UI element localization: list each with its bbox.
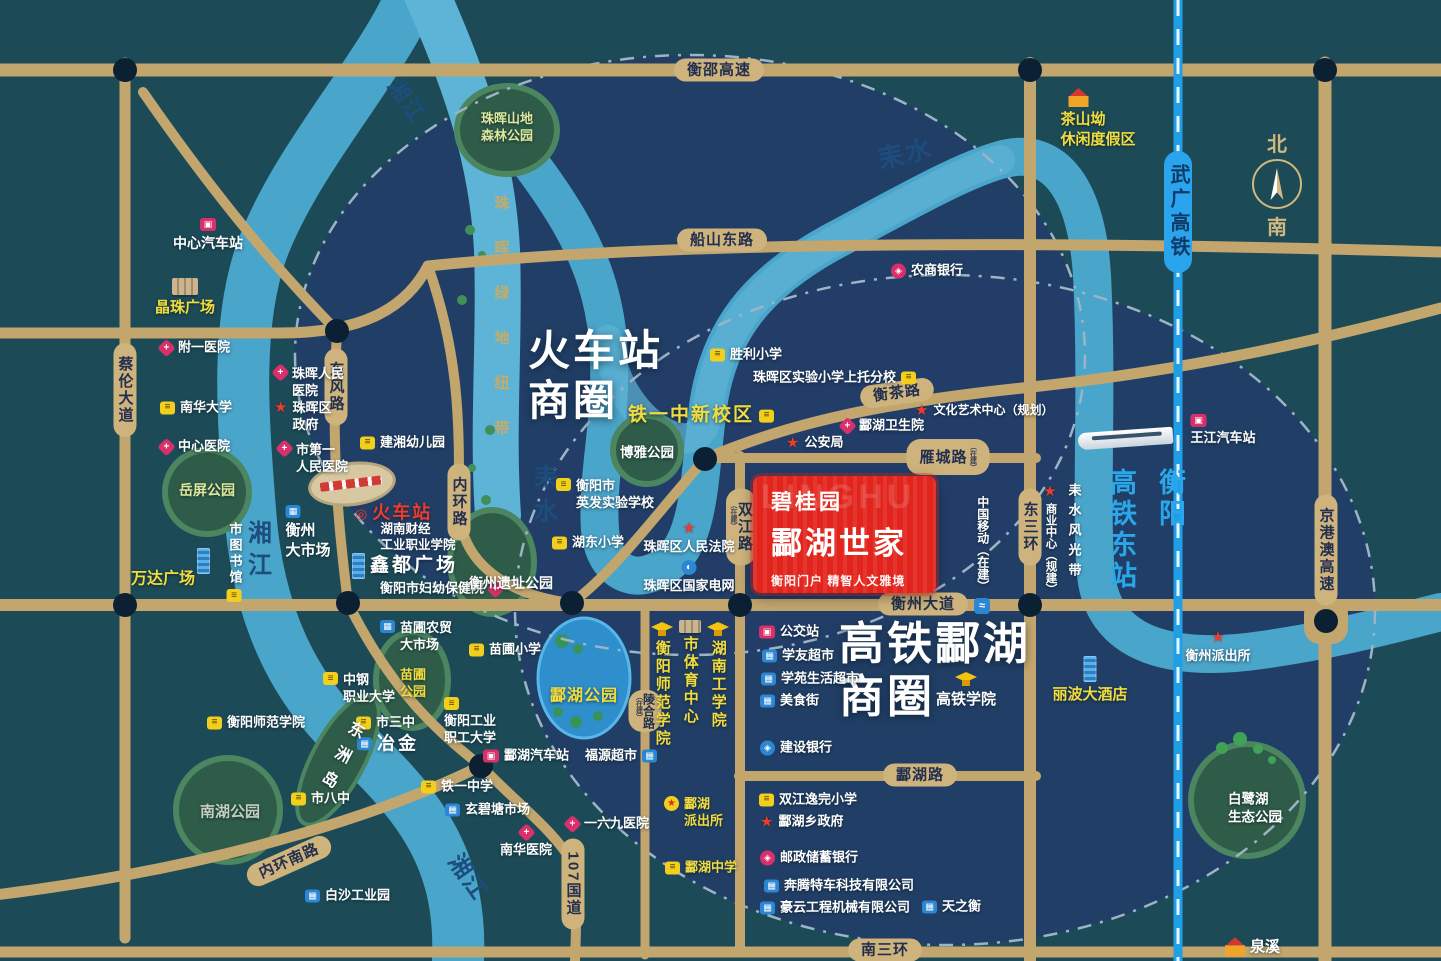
gov-star-icon: ★ xyxy=(760,814,773,829)
road-label-g107: 107国道 xyxy=(562,838,585,929)
poi-xuanbitang-market: ▦ 玄碧塘市场 xyxy=(445,802,530,819)
gov-star-icon: ★ xyxy=(682,521,695,536)
hospital-icon: + xyxy=(157,339,175,357)
poi-xueyuan-life-supermarket: ▦ 学苑生活超市 xyxy=(761,671,859,688)
company-icon: ▦ xyxy=(760,901,775,914)
poi-hengzhou-market: ▦ 衡州 大市场 xyxy=(285,505,330,560)
bank-icon: ◈ xyxy=(891,263,906,278)
grad-cap-icon xyxy=(650,622,674,637)
poi-hengyang-normal-college: 衡阳师范学院 xyxy=(650,622,674,748)
company-icon: ▦ xyxy=(764,879,779,892)
poi-finance-college: 湖南财经 工业职业学院 xyxy=(380,521,455,554)
road-label-hengzhou-ave: 衡州大道 xyxy=(878,593,968,616)
greenway-label: 珠晖绿地纽带 xyxy=(491,195,512,465)
poi-no8-middle-school: ≡ 市八中 xyxy=(291,791,350,808)
poi-china-mobile: 中国移动（在建） ≈ xyxy=(974,496,990,614)
compass-south-label: 南 xyxy=(1267,211,1287,240)
poi-boya-park: 博雅公园 xyxy=(620,444,674,462)
hospital-icon: + xyxy=(838,417,856,435)
bus-icon: ▣ xyxy=(1190,414,1206,427)
poi-linghu-middle-school: ≡ 酃湖中学 xyxy=(665,860,737,877)
market-icon: ▦ xyxy=(762,649,777,662)
poi-chashanao-resort: 茶山坳 休闲度假区 xyxy=(1060,88,1135,149)
bank-icon: ◈ xyxy=(760,850,775,865)
school-icon: ≡ xyxy=(323,672,338,685)
poi-quanxi: 泉溪 xyxy=(1225,937,1280,957)
poi-xueyou-supermarket: ▦ 学友超市 xyxy=(762,648,834,665)
tower-icon xyxy=(352,553,365,579)
poi-zhuhui-people-hospital: + 珠晖人民 医院 xyxy=(274,366,344,400)
poi-yejin: ▦ 冶金 xyxy=(357,732,419,755)
poi-city-library: 市图书馆 ≡ xyxy=(226,522,243,602)
poi-construction-bank: ◈ 建设银行 xyxy=(760,740,832,757)
poi-linghu-police-station: ★ 酃湖 派出所 xyxy=(664,796,723,830)
poi-miaopu-park: 苗圃 公园 xyxy=(400,667,426,701)
market-icon: ▦ xyxy=(760,694,775,707)
poi-hsr-college: 高铁学院 xyxy=(936,672,996,710)
poi-baisha-industrial: ▦ 白沙工业园 xyxy=(305,888,390,905)
police-star-icon: ★ xyxy=(664,796,679,811)
school-icon: ≡ xyxy=(759,410,774,423)
poi-bus-stop: ▣ 公交站 xyxy=(759,624,819,641)
poi-fuyuan-supermarket: 福源超市 ▦ xyxy=(585,748,657,765)
poi-jianxiang-kindergarten: ≡ 建湘幼儿园 xyxy=(360,435,445,452)
poi-libo-hotel: 丽波大酒店 xyxy=(1052,656,1127,705)
poi-central-hospital: + 中心医院 xyxy=(160,439,230,456)
poi-culture-art-center: ★ 文化艺术中心（规划） xyxy=(915,403,1053,419)
stadium-icon xyxy=(679,620,701,633)
project-brand: 碧桂园 xyxy=(771,486,936,516)
school-icon: ≡ xyxy=(291,792,306,805)
gov-star-icon: ★ xyxy=(274,400,287,415)
hospital-icon: + xyxy=(517,823,535,841)
poi-state-grid: ◐ 珠晖区国家电网 xyxy=(643,560,734,595)
school-icon: ≡ xyxy=(469,643,484,656)
road-label-chuanshan-east: 船山东路 xyxy=(677,229,767,252)
poi-169-hospital: + 一六九医院 xyxy=(566,816,649,833)
poi-shengli-primary: ≡ 胜利小学 xyxy=(710,347,782,364)
bank-icon: ◈ xyxy=(760,740,775,755)
road-label-south-3rd-ring: 南三环 xyxy=(848,939,922,961)
poi-zhonggang-university: ≡ 中钢 职业大学 xyxy=(323,672,395,706)
school-icon: ≡ xyxy=(444,697,459,710)
poi-food-street: ▦ 美食街 xyxy=(760,693,819,710)
poi-zhuhui-forest-park: 珠晖山地 森林公园 xyxy=(481,111,533,145)
school-icon: ≡ xyxy=(759,793,774,806)
poi-linghu-park: 酃湖公园 xyxy=(550,687,618,708)
bus-icon: ▣ xyxy=(759,625,775,638)
company-icon: ▦ xyxy=(922,900,937,913)
school-icon: ≡ xyxy=(710,348,725,361)
poi-leishui-scenic-belt: 耒水风光带 xyxy=(1065,483,1082,583)
company-icon: ▦ xyxy=(305,889,320,902)
poi-bailuhu-park: 白鹭湖 生态公园 xyxy=(1228,790,1282,825)
grad-cap-icon xyxy=(706,622,730,637)
poi-central-bus-station: ▣ 中心汽车站 xyxy=(173,218,243,252)
market-icon: ▦ xyxy=(761,672,776,685)
gov-star-icon: ★ xyxy=(915,404,928,419)
poi-fuyi-hospital: + 附一医院 xyxy=(160,340,230,357)
poi-hengzhou-ruins-park: 衡州遗址公园 xyxy=(469,574,553,592)
hospital-icon: + xyxy=(563,815,581,833)
poi-haoyun-company: ▦ 豪云工程机械有限公司 xyxy=(760,900,910,917)
school-icon: ≡ xyxy=(556,478,571,491)
library-icon: ≡ xyxy=(226,589,241,602)
poi-miaopu-primary: ≡ 苗圃小学 xyxy=(469,642,541,659)
road-label-east-3rd-ring: 东三环 xyxy=(1019,489,1042,566)
bus-icon: ▣ xyxy=(200,218,216,231)
school-icon: ≡ xyxy=(360,436,375,449)
school-icon: ≡ xyxy=(665,861,680,874)
bus-icon: ▣ xyxy=(483,749,499,762)
poi-linghu-clinic: + 酃湖卫生院 xyxy=(841,418,924,435)
gov-star-icon: ★ xyxy=(786,435,799,450)
poi-hengzhou-police-station: ★ 衡州派出所 xyxy=(1185,630,1250,665)
poi-tieyi-new-campus: 铁一中新校区 ≡ xyxy=(628,404,774,429)
poi-jingzhu-plaza: 晶珠广场 xyxy=(155,278,215,318)
market-icon: ▦ xyxy=(285,505,300,518)
poi-shuangjiang-primary: ≡ 双江逸完小学 xyxy=(759,792,857,809)
road-label-jinggangao: 京港澳高速 xyxy=(1315,495,1338,606)
poi-industrial-workers-college: ≡ 衡阳工业 职工大学 xyxy=(444,697,496,747)
poi-rural-commercial-bank: ◈ 农商银行 xyxy=(891,263,963,280)
poi-yingfa-school: ≡ 衡阳市 英发实验学校 xyxy=(556,478,654,512)
project-name: 酃湖世家 xyxy=(771,518,936,563)
poi-hudong-primary: ≡ 湖东小学 xyxy=(552,535,624,552)
school-icon: ≡ xyxy=(160,401,175,414)
poi-benteng-company: ▦ 奔腾特车科技有限公司 xyxy=(764,878,914,895)
hospital-icon: + xyxy=(157,438,175,456)
poi-miaopu-farm-market: ▦ 苗圃农贸 大市场 xyxy=(380,620,452,654)
compass-rose-icon xyxy=(1252,159,1302,209)
poi-zhuhui-district-gov: ★ 珠晖区 政府 xyxy=(274,400,331,434)
poi-linghu-township-gov: ★ 酃湖乡政府 xyxy=(760,814,843,831)
poi-yueping-park: 岳屏公园 xyxy=(179,481,235,499)
market-icon: ▦ xyxy=(445,803,460,816)
location-map: 衡邵高速 船山东路 衡茶路 雁城路（在建） 衡州大道 酃湖路 南三环 内环南路 … xyxy=(0,0,1441,961)
poi-public-security-bureau: ★ 公安局 xyxy=(786,435,843,452)
hospital-icon: + xyxy=(275,439,293,457)
poi-postal-savings-bank: ◈ 邮政储蓄银行 xyxy=(760,850,858,867)
river-label-xiangjiang-mid: 湘江 xyxy=(240,520,275,584)
poi-city-sports-center: 市体育中心 xyxy=(679,620,701,726)
gov-star-icon: ★ xyxy=(1211,630,1224,645)
poi-nanhu-park: 南湖公园 xyxy=(200,802,260,822)
market-icon: ▦ xyxy=(642,749,657,762)
hospital-icon: + xyxy=(271,363,289,381)
state-grid-icon: ◐ xyxy=(681,560,696,575)
poi-commercial-center: ★ 商业中心（规建） xyxy=(1043,484,1058,595)
road-label-yancheng: 雁城路（在建） xyxy=(906,439,989,475)
poi-wanda-plaza: 万达广场 xyxy=(131,570,195,591)
tower-icon xyxy=(1083,656,1096,682)
poi-wangjiang-bus-station: ▣ 王江汽车站 xyxy=(1190,414,1255,447)
market-icon: ▦ xyxy=(380,620,395,633)
poi-xindu-plaza: 鑫都广场 xyxy=(352,553,458,579)
compass: 北 南 xyxy=(1252,128,1302,240)
project-card-linghu-shijia: LINGHU 碧桂园 酃湖世家 衡阳门户 精智人文雅境 xyxy=(753,476,936,593)
road-label-wuguang-hsr: 武广高铁 xyxy=(1164,151,1192,273)
rail-ring-icon: ◎ xyxy=(355,506,367,520)
poi-hunan-institute-tech: 湖南工学院 xyxy=(706,622,730,730)
house-icon xyxy=(1225,946,1245,957)
road-label-hengshao-expwy: 衡邵高速 xyxy=(674,59,764,82)
china-mobile-icon: ≈ xyxy=(974,598,990,614)
poi-nanhua-university: ≡ 南华大学 xyxy=(160,400,232,417)
school-icon: ≡ xyxy=(901,371,916,384)
compass-north-label: 北 xyxy=(1267,128,1287,157)
poi-zhuhui-court: ★ 珠晖区人民法院 xyxy=(643,521,734,556)
poi-linghu-bus-station: ▣ 酃湖汽车站 xyxy=(483,748,569,765)
building-icon xyxy=(172,278,198,295)
poi-hengyang-normal-west: ≡ 衡阳师范学院 xyxy=(207,715,305,732)
poi-zhuhui-experimental-branch: 珠晖区实验小学上托分校 ≡ xyxy=(753,370,916,387)
gov-star-icon: ★ xyxy=(1043,484,1056,499)
school-icon: ≡ xyxy=(552,536,567,549)
road-label-cailun-ave: 蔡伦大道 xyxy=(114,343,137,437)
school-icon: ≡ xyxy=(421,780,436,793)
house-icon xyxy=(1068,96,1088,107)
poi-tieyi-middle-school: ≡ 铁一中学 xyxy=(421,779,493,796)
poi-tianzhiheng: ▦ 天之衡 xyxy=(922,899,981,916)
poi-nanhua-hospital: + 南华医院 xyxy=(500,826,552,859)
hsr-east-station-label: 高铁东站 衡阳 xyxy=(1102,468,1190,592)
poi-first-people-hospital: + 市第一 人民医院 xyxy=(278,442,348,476)
grad-cap-icon xyxy=(954,672,978,687)
tower-icon xyxy=(197,548,210,574)
project-tagline: 衡阳门户 精智人文雅境 xyxy=(771,572,936,589)
school-icon: ≡ xyxy=(207,716,222,729)
road-label-linghu-rd: 酃湖路 xyxy=(883,764,957,787)
